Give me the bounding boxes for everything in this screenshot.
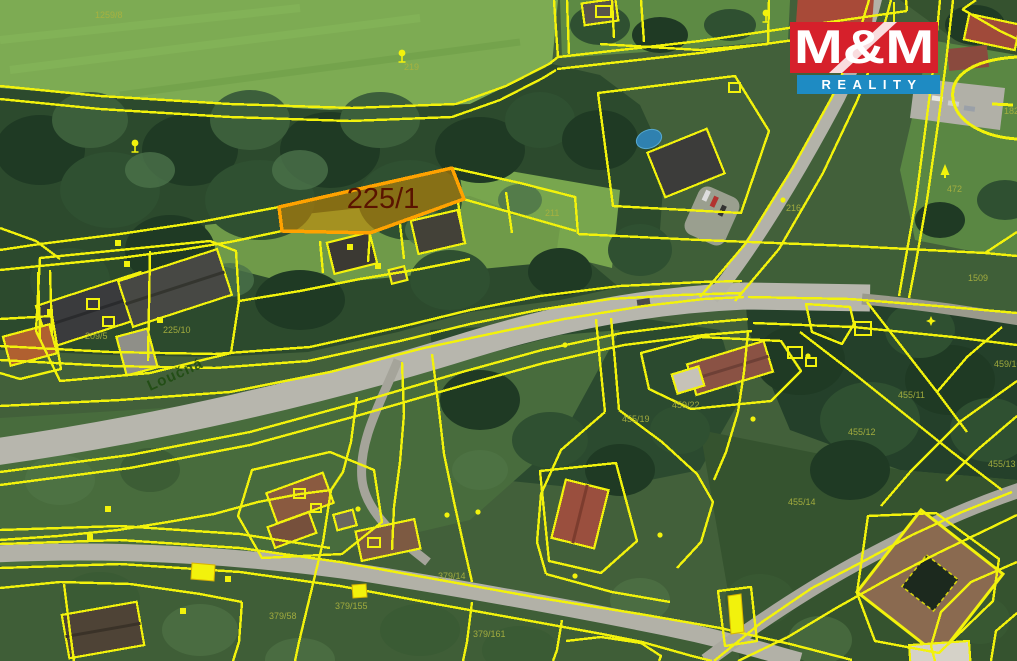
dot-symbol: [657, 532, 662, 537]
parcel-number-label: 455/11: [898, 390, 925, 400]
parcel-number-label: 459/10: [994, 359, 1017, 369]
parcel-number-label: 182: [1004, 106, 1017, 116]
highlighted-parcel-label: 225/1: [347, 183, 420, 215]
parcel-number-label: 455/12: [848, 427, 876, 437]
mm-reality-logo[interactable]: M&M REALITY: [790, 21, 940, 94]
sq-symbol: [105, 506, 111, 512]
parcel-number-label: 211: [545, 208, 559, 218]
dot-symbol: [562, 342, 567, 347]
parcel-number-label: 379/161: [473, 629, 506, 639]
parcel-number-label: 225/10: [163, 325, 191, 335]
sq-symbol: [47, 309, 53, 315]
map-viewport[interactable]: 1259/82192112164721509182225/10209/5459/…: [0, 0, 1017, 661]
cadastral-map[interactable]: 1259/82192112164721509182225/10209/5459/…: [0, 0, 1017, 661]
sq-symbol: [347, 244, 353, 250]
dot-symbol: [780, 197, 785, 202]
sq-symbol: [124, 261, 130, 267]
shed: [389, 266, 408, 283]
sq-symbol: [157, 317, 163, 323]
dot-symbol: [355, 506, 360, 511]
parcel-number-label: 209/5: [85, 331, 108, 341]
parcel-number-label: 472: [947, 184, 962, 194]
dot-symbol: [475, 509, 480, 514]
parcel-number-label: 455/13: [988, 459, 1016, 469]
sq-symbol: [375, 263, 381, 269]
logo-title: M&M: [794, 21, 934, 73]
parcel-number-label: 216: [786, 203, 801, 213]
sq-symbol: [180, 608, 186, 614]
parcel-number-label: 455/14: [788, 497, 816, 507]
red-roof-top-3: [947, 45, 989, 71]
sq-symbol: [87, 534, 93, 540]
parcel-number-label: 455/19: [622, 414, 650, 424]
parcel-number-label: 459/22: [672, 400, 700, 410]
parcel-number-label: 379/14: [438, 571, 466, 581]
dot-symbol: [572, 573, 577, 578]
parcel-number-label: 1259/8: [95, 10, 123, 20]
parcel-number-label: 379/58: [269, 611, 297, 621]
parcel-number-label: 219: [404, 62, 419, 72]
parcel-number-label: 1509: [968, 273, 988, 283]
parcel-number-label: 379/155: [335, 601, 368, 611]
logo-subtitle: REALITY: [821, 77, 922, 92]
dot-symbol: [444, 512, 449, 517]
dot-symbol: [750, 416, 755, 421]
sq-symbol: [115, 240, 121, 246]
sq-symbol: [225, 576, 231, 582]
